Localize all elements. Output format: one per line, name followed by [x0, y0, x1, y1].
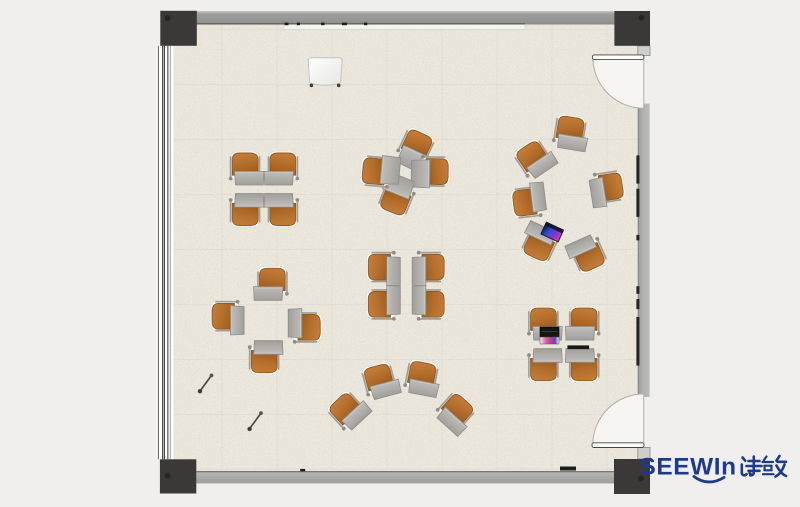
svg-text:SEEWIn: SEEWIn: [640, 454, 737, 481]
